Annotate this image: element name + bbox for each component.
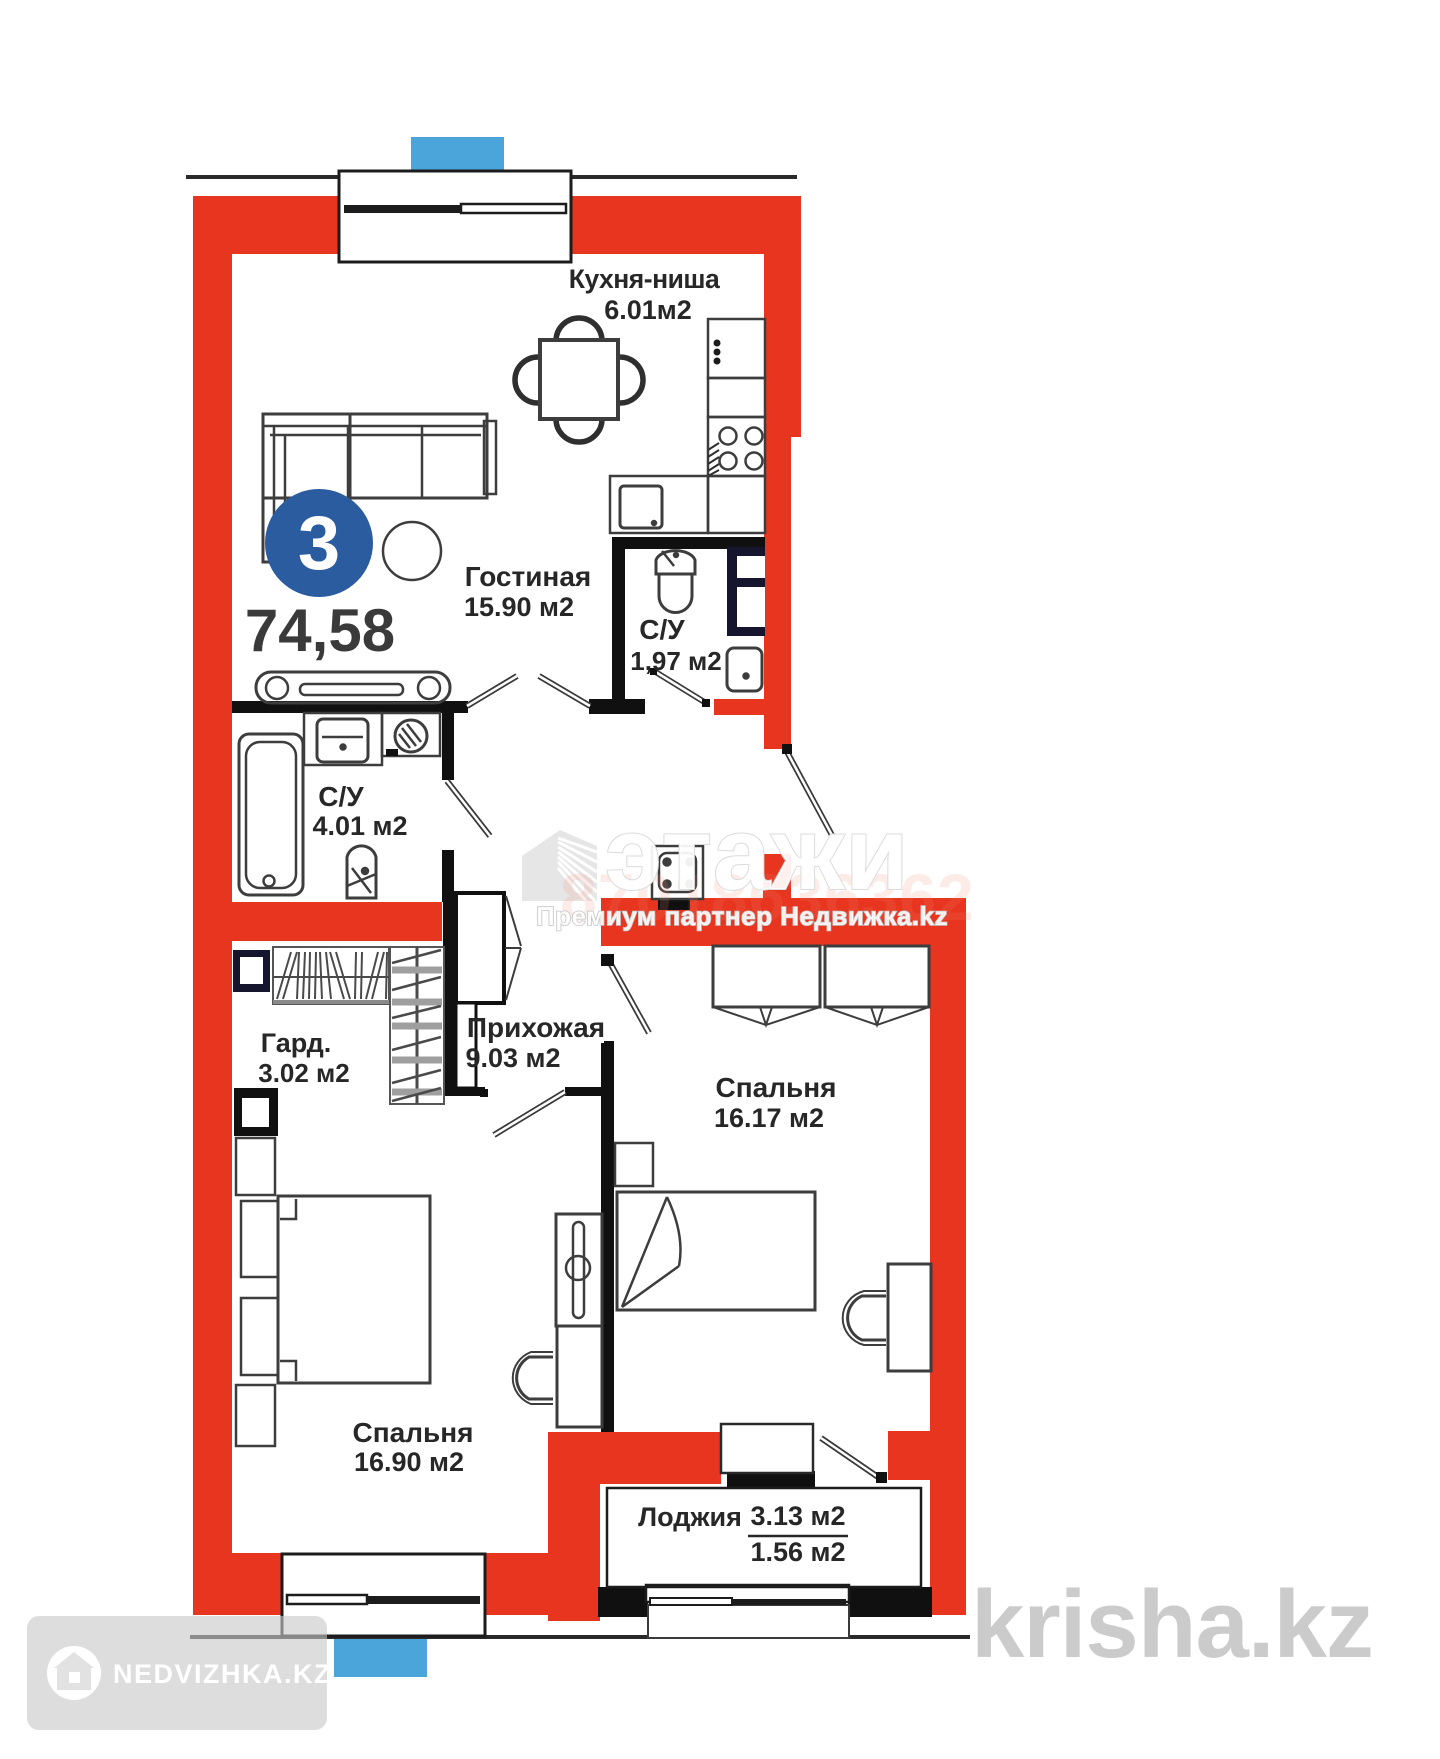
svg-text:1,97 м2: 1,97 м2 (630, 646, 722, 676)
svg-text:Премиум партнер Недвижка.kz: Премиум партнер Недвижка.kz (536, 901, 948, 931)
svg-text:krisha.kz: krisha.kz (971, 1571, 1373, 1678)
svg-text:Кухня-ниша: Кухня-ниша (569, 264, 720, 294)
svg-text:9.03 м2: 9.03 м2 (465, 1043, 560, 1073)
svg-text:NEDVIZHKA.KZ: NEDVIZHKA.KZ (113, 1659, 332, 1689)
svg-text:С/У: С/У (639, 614, 685, 645)
svg-text:6.01м2: 6.01м2 (604, 295, 692, 325)
svg-text:Прихожая: Прихожая (467, 1012, 605, 1043)
svg-text:3: 3 (298, 501, 340, 586)
svg-text:3.02 м2: 3.02 м2 (258, 1058, 350, 1088)
svg-text:Гостиная: Гостиная (465, 561, 592, 592)
svg-text:16.90 м2: 16.90 м2 (354, 1447, 464, 1477)
svg-text:этажи: этажи (605, 796, 910, 911)
svg-text:Гард.: Гард. (261, 1028, 331, 1058)
svg-text:Спальня: Спальня (716, 1072, 837, 1103)
svg-text:1.56 м2: 1.56 м2 (750, 1537, 845, 1567)
svg-text:Лоджия: Лоджия (638, 1502, 742, 1532)
svg-text:74,58: 74,58 (245, 597, 395, 664)
svg-text:4.01 м2: 4.01 м2 (312, 811, 407, 841)
svg-text:15.90 м2: 15.90 м2 (464, 592, 574, 622)
svg-text:С/У: С/У (318, 781, 364, 812)
svg-text:16.17 м2: 16.17 м2 (714, 1103, 824, 1133)
svg-text:3.13 м2: 3.13 м2 (750, 1501, 845, 1531)
svg-text:Спальня: Спальня (353, 1417, 474, 1448)
